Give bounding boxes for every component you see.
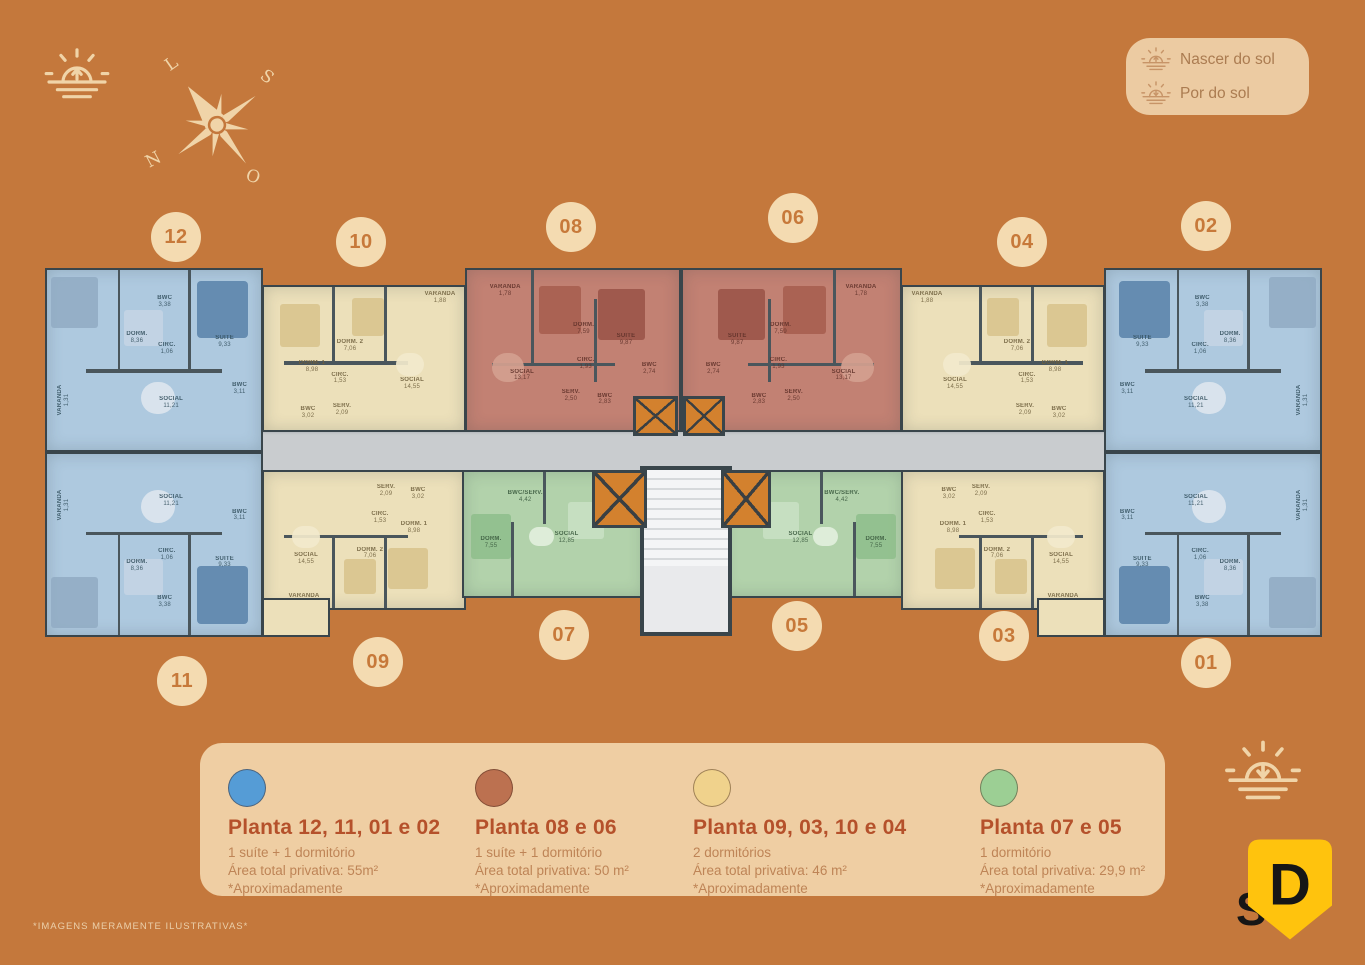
interior-wall xyxy=(1145,369,1282,373)
legend-item: Planta 09, 03, 10 e 042 dormitóriosÁrea … xyxy=(693,769,943,898)
furniture xyxy=(51,577,98,628)
legend-item-line: *Aproximadamente xyxy=(980,881,1230,897)
room-label: BWC2,83 xyxy=(751,393,766,407)
room-label: SUITE9,87 xyxy=(728,334,747,348)
room-label: SOCIAL13,17 xyxy=(510,369,534,383)
unit-badge-05: 05 xyxy=(772,601,822,651)
room-label: BWC3,38 xyxy=(1195,296,1210,310)
room-label: BWC3,02 xyxy=(301,406,316,420)
room-label: SOCIAL14,55 xyxy=(943,377,967,391)
brand-logo: S D xyxy=(1232,836,1365,958)
legend-item: Planta 08 e 061 suíte + 1 dormitórioÁrea… xyxy=(475,769,725,898)
legend-item-title: Planta 07 e 05 xyxy=(980,816,1230,840)
room-label: CIRC.1,06 xyxy=(1191,342,1208,356)
unit-11-area: VARANDA1,31DORM.8,36BWC3,38CIRC.1,06SUIT… xyxy=(45,452,263,637)
room-label: DORM.8,36 xyxy=(126,332,147,346)
room-label: SOCIAL14,55 xyxy=(400,377,424,391)
room-label: SUITE9,33 xyxy=(1133,556,1152,570)
legend-item-line: Área total privativa: 50 m² xyxy=(475,863,725,879)
room-label: BWC3,38 xyxy=(1195,596,1210,610)
room-label: SUITE9,33 xyxy=(215,335,234,349)
unit-04-area: VARANDA1,88DORM. 27,06DORM. 18,98CIRC.1,… xyxy=(901,285,1105,432)
interior-wall xyxy=(1031,287,1034,361)
interior-wall xyxy=(384,287,387,361)
furniture xyxy=(1119,566,1170,624)
room-label: DORM. 27,06 xyxy=(337,339,363,353)
room-label: DORM. 27,06 xyxy=(984,547,1010,561)
room-label: BWC3,11 xyxy=(1120,382,1135,396)
unit-badge-06: 06 xyxy=(768,193,818,243)
room-label: DORM. 18,98 xyxy=(299,360,325,374)
furniture xyxy=(396,353,424,376)
furniture xyxy=(1269,277,1316,327)
room-label: DORM.7,59 xyxy=(573,322,594,336)
furniture xyxy=(197,566,248,624)
interior-wall xyxy=(86,369,223,373)
room-label: DORM.8,36 xyxy=(1220,332,1241,346)
room-label: SUITE9,33 xyxy=(215,556,234,570)
legend-item-line: 1 suíte + 1 dormitório xyxy=(475,845,725,861)
furniture xyxy=(1269,577,1316,628)
unit-10-area: VARANDA1,88DORM. 27,06DORM. 18,98CIRC.1,… xyxy=(262,285,466,432)
legend-item-title: Planta 09, 03, 10 e 04 xyxy=(693,816,943,840)
legend-color-dot xyxy=(980,769,1018,807)
unit-badge-04: 04 xyxy=(997,217,1047,267)
room-label: CIRC.1,53 xyxy=(978,511,995,525)
room-label: CIRC.1,06 xyxy=(1191,548,1208,562)
interior-wall xyxy=(1031,537,1034,608)
interior-wall xyxy=(332,287,335,361)
elevator-shaft xyxy=(721,470,771,528)
room-label: BWC/SERV.4,42 xyxy=(508,490,543,504)
room-label: SERV.2,09 xyxy=(377,484,395,498)
room-label: BWC3,38 xyxy=(157,296,172,310)
interior-wall xyxy=(188,270,191,369)
legend-item-line: Área total privativa: 46 m² xyxy=(693,863,943,879)
room-label: BWC3,02 xyxy=(942,487,957,501)
interior-wall xyxy=(1247,270,1250,369)
unit-badge-02: 02 xyxy=(1181,201,1231,251)
elevator-shaft xyxy=(683,396,725,436)
page: L S N O Nascer do sol Por do sol VARANDA… xyxy=(0,0,1365,965)
furniture xyxy=(352,298,384,335)
room-label: VARANDA1,31 xyxy=(1296,384,1310,415)
interior-wall xyxy=(511,522,514,596)
room-label: CIRC.1,93 xyxy=(770,358,787,372)
sunset-icon xyxy=(1222,736,1304,808)
room-label: DORM. 27,06 xyxy=(1004,339,1030,353)
furniture xyxy=(935,548,975,589)
room-label: VARANDA1,31 xyxy=(57,489,71,520)
room-label: BWC2,83 xyxy=(597,393,612,407)
room-label: SOCIAL11,21 xyxy=(159,494,183,508)
interior-wall xyxy=(1177,535,1180,635)
room-label: BWC3,11 xyxy=(1120,509,1135,523)
room-label: CIRC.1,53 xyxy=(331,372,348,386)
room-label: DORM. 18,98 xyxy=(940,521,966,535)
room-label: BWC3,11 xyxy=(232,509,247,523)
stairs xyxy=(640,466,732,636)
room-label: SOCIAL13,17 xyxy=(832,369,856,383)
furniture xyxy=(813,527,838,547)
room-label: VARANDA1,78 xyxy=(845,284,876,298)
interior-wall xyxy=(979,537,982,608)
furniture xyxy=(1119,281,1170,339)
furniture xyxy=(1047,526,1075,548)
furniture xyxy=(943,353,971,376)
room-label: SERV.2,09 xyxy=(972,484,990,498)
interior-wall xyxy=(543,472,546,524)
legend-item-line: *Aproximadamente xyxy=(475,881,725,897)
unit-badge-11: 11 xyxy=(157,656,207,706)
interior-wall xyxy=(86,532,223,536)
legend-item-title: Planta 08 e 06 xyxy=(475,816,725,840)
unit-badge-12: 12 xyxy=(151,212,201,262)
room-label: SERV.2,50 xyxy=(562,390,580,404)
room-label: VARANDA1,88 xyxy=(425,292,456,306)
room-label: SOCIAL11,21 xyxy=(1184,396,1208,410)
legend-item: Planta 12, 11, 01 e 021 suíte + 1 dormit… xyxy=(228,769,478,898)
room-label: BWC3,02 xyxy=(1052,406,1067,420)
furniture xyxy=(1047,304,1087,347)
interior-wall xyxy=(979,287,982,361)
interior-wall xyxy=(1177,270,1180,369)
room-label: SUITE9,33 xyxy=(1133,335,1152,349)
interior-wall xyxy=(1247,535,1250,635)
unit-badge-07: 07 xyxy=(539,610,589,660)
room-label: DORM.7,55 xyxy=(866,536,887,550)
room-label: DORM. 18,98 xyxy=(401,521,427,535)
room-label: CIRC.1,06 xyxy=(158,342,175,356)
room-label: BWC2,74 xyxy=(642,362,657,376)
room-label: VARANDA1,31 xyxy=(1296,489,1310,520)
room-label: CIRC.1,53 xyxy=(371,511,388,525)
legend-item-title: Planta 12, 11, 01 e 02 xyxy=(228,816,478,840)
interior-wall xyxy=(118,270,121,369)
elevator-shaft xyxy=(592,470,647,528)
legend-item-line: 1 suíte + 1 dormitório xyxy=(228,845,478,861)
legend-item-line: Área total privativa: 29,9 m² xyxy=(980,863,1230,879)
logo-letter: D xyxy=(1269,853,1311,918)
room-label: CIRC.1,93 xyxy=(577,358,594,372)
furniture xyxy=(529,527,554,547)
room-label: DORM.8,36 xyxy=(126,559,147,573)
room-label: SOCIAL12,85 xyxy=(788,531,812,545)
furniture xyxy=(987,298,1019,335)
legend-color-dot xyxy=(475,769,513,807)
room-label: SUITE9,87 xyxy=(617,334,636,348)
legend-item-line: Área total privativa: 55m² xyxy=(228,863,478,879)
unit-badge-03: 03 xyxy=(979,611,1029,661)
room-label: VARANDA1,31 xyxy=(57,384,71,415)
room-label: SOCIAL14,55 xyxy=(1049,552,1073,566)
legend-item-line: *Aproximadamente xyxy=(693,881,943,897)
elevator-shaft xyxy=(633,396,678,436)
legend-panel: Planta 12, 11, 01 e 021 suíte + 1 dormit… xyxy=(200,743,1165,896)
room-label: DORM.8,36 xyxy=(1220,559,1241,573)
interior-wall xyxy=(531,270,534,363)
furniture xyxy=(197,281,248,339)
unit-09-area: VARANDA1,88DORM. 27,06DORM. 18,98CIRC.1,… xyxy=(262,470,466,610)
room-label: CIRC.1,06 xyxy=(158,548,175,562)
room-label: BWC3,02 xyxy=(411,487,426,501)
furniture xyxy=(995,559,1027,594)
room-label: SERV.2,09 xyxy=(1016,403,1034,417)
legend-item-line: *Aproximadamente xyxy=(228,881,478,897)
interior-wall xyxy=(384,537,387,608)
legend-item: Planta 07 e 051 dormitórioÁrea total pri… xyxy=(980,769,1230,898)
room-label: BWC2,74 xyxy=(706,362,721,376)
room-label: DORM. 27,06 xyxy=(357,547,383,561)
furniture xyxy=(280,304,320,347)
interior-wall xyxy=(118,535,121,635)
interior-wall xyxy=(594,299,597,382)
logo-shield: D xyxy=(1247,838,1333,941)
room-label: SOCIAL12,85 xyxy=(555,531,579,545)
unit-badge-08: 08 xyxy=(546,202,596,252)
room-label: SERV.2,09 xyxy=(333,403,351,417)
unit-badge-10: 10 xyxy=(336,217,386,267)
furniture xyxy=(51,277,98,327)
furniture xyxy=(292,526,320,548)
room-label: BWC3,38 xyxy=(157,596,172,610)
interior-wall xyxy=(1145,532,1282,536)
unit-badge-09: 09 xyxy=(353,637,403,687)
room-label: DORM.7,59 xyxy=(770,322,791,336)
room-label: SOCIAL14,55 xyxy=(294,552,318,566)
legend-item-line: 2 dormitórios xyxy=(693,845,943,861)
unit-03-area: VARANDA1,88DORM. 27,06DORM. 18,98CIRC.1,… xyxy=(901,470,1105,610)
interior-wall xyxy=(332,537,335,608)
unit-01-area: VARANDA1,31DORM.8,36BWC3,38CIRC.1,06SUIT… xyxy=(1104,452,1322,637)
unit-03-varanda xyxy=(1037,598,1105,637)
room-label: CIRC.1,53 xyxy=(1018,372,1035,386)
unit-02-area: VARANDA1,31DORM.8,36BWC3,38CIRC.1,06SUIT… xyxy=(1104,268,1322,452)
room-label: SOCIAL11,21 xyxy=(159,396,183,410)
interior-wall xyxy=(188,535,191,635)
room-label: DORM. 18,98 xyxy=(1042,360,1068,374)
legend-color-dot xyxy=(693,769,731,807)
unit-badge-01: 01 xyxy=(1181,638,1231,688)
disclaimer-text: *IMAGENS MERAMENTE ILUSTRATIVAS* xyxy=(33,921,248,932)
unit-12-area: VARANDA1,31DORM.8,36BWC3,38CIRC.1,06SUIT… xyxy=(45,268,263,452)
room-label: BWC3,11 xyxy=(232,382,247,396)
room-label: BWC/SERV.4,42 xyxy=(824,490,859,504)
furniture xyxy=(344,559,376,594)
room-label: SOCIAL11,21 xyxy=(1184,494,1208,508)
room-label: VARANDA1,88 xyxy=(912,292,943,306)
room-label: VARANDA1,78 xyxy=(490,284,521,298)
unit-09-varanda xyxy=(262,598,330,637)
room-label: DORM.7,55 xyxy=(481,536,502,550)
legend-item-line: 1 dormitório xyxy=(980,845,1230,861)
interior-wall xyxy=(833,270,836,363)
furniture xyxy=(388,548,428,589)
interior-wall xyxy=(820,472,823,524)
legend-color-dot xyxy=(228,769,266,807)
room-label: SERV.2,50 xyxy=(784,390,802,404)
